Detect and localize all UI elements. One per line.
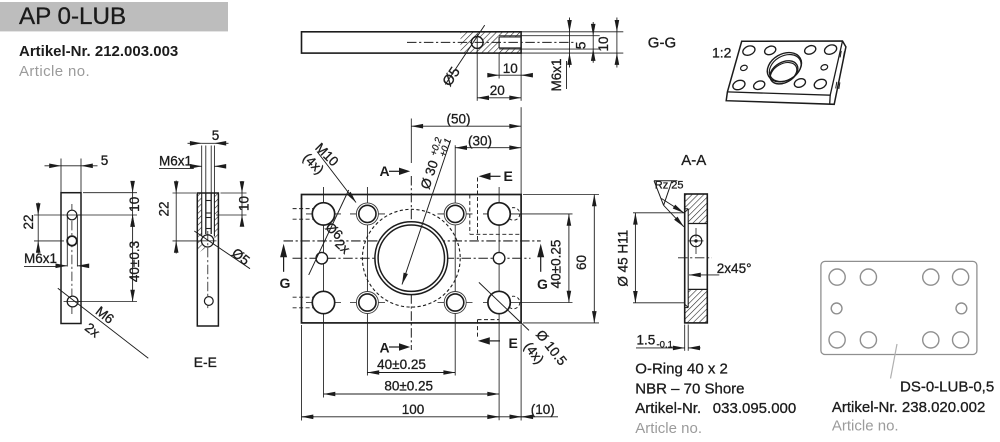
- svg-text:A: A: [380, 163, 390, 179]
- svg-text:(10): (10): [531, 402, 555, 417]
- svg-text:1.5: 1.5: [637, 332, 656, 347]
- svg-text:M6x1: M6x1: [24, 251, 57, 266]
- svg-text:A: A: [380, 339, 390, 355]
- svg-text:22: 22: [21, 214, 36, 229]
- svg-text:O-Ring 40 x 2: O-Ring 40 x 2: [635, 361, 728, 378]
- svg-text:Article no.: Article no.: [832, 418, 899, 435]
- svg-text:G: G: [280, 275, 291, 291]
- svg-text:-0.1: -0.1: [657, 340, 673, 351]
- svg-text:E-E: E-E: [194, 355, 217, 370]
- svg-text:Article no.: Article no.: [19, 63, 90, 80]
- svg-text:2x45°: 2x45°: [717, 261, 752, 276]
- svg-text:5: 5: [212, 128, 220, 143]
- svg-text:NBR – 70 Shore: NBR – 70 Shore: [635, 380, 744, 397]
- svg-text:E: E: [509, 335, 518, 351]
- svg-text:G-G: G-G: [648, 34, 676, 51]
- svg-text:E: E: [504, 168, 513, 184]
- svg-text:60: 60: [574, 255, 589, 270]
- svg-text:80±0.25: 80±0.25: [384, 379, 433, 394]
- svg-text:5: 5: [101, 153, 109, 168]
- svg-text:10: 10: [127, 197, 142, 212]
- svg-text:5: 5: [574, 42, 589, 50]
- svg-text:(30): (30): [468, 134, 492, 149]
- svg-text:10: 10: [596, 36, 611, 51]
- svg-text:20: 20: [490, 83, 505, 98]
- svg-text:DS-0-LUB-0,5: DS-0-LUB-0,5: [900, 379, 994, 396]
- svg-text:Artikel-Nr. 033.095.000: Artikel-Nr. 033.095.000: [635, 400, 796, 417]
- svg-text:M6x1: M6x1: [549, 58, 564, 91]
- svg-text:M6x1: M6x1: [159, 153, 192, 168]
- svg-text:40±0.3: 40±0.3: [127, 241, 142, 282]
- svg-text:Artikel-Nr. 212.003.003: Artikel-Nr. 212.003.003: [19, 43, 178, 60]
- svg-text:Article no.: Article no.: [635, 420, 702, 437]
- svg-text:1:2: 1:2: [712, 44, 732, 60]
- svg-text:22: 22: [157, 201, 172, 216]
- svg-text:10: 10: [503, 61, 518, 76]
- svg-text:Rz 25: Rz 25: [655, 179, 684, 191]
- svg-text:100: 100: [402, 402, 425, 417]
- svg-text:10: 10: [237, 196, 252, 211]
- svg-text:A-A: A-A: [681, 152, 706, 169]
- svg-text:Ø 45 H11: Ø 45 H11: [615, 230, 630, 287]
- svg-text:(50): (50): [446, 112, 470, 127]
- svg-text:Artikel-Nr. 238.020.002: Artikel-Nr. 238.020.002: [832, 399, 985, 416]
- svg-text:G: G: [537, 276, 548, 292]
- svg-text:40±0.25: 40±0.25: [548, 240, 563, 289]
- svg-text:AP 0-LUB: AP 0-LUB: [19, 3, 126, 30]
- svg-text:40±0.25: 40±0.25: [377, 357, 426, 372]
